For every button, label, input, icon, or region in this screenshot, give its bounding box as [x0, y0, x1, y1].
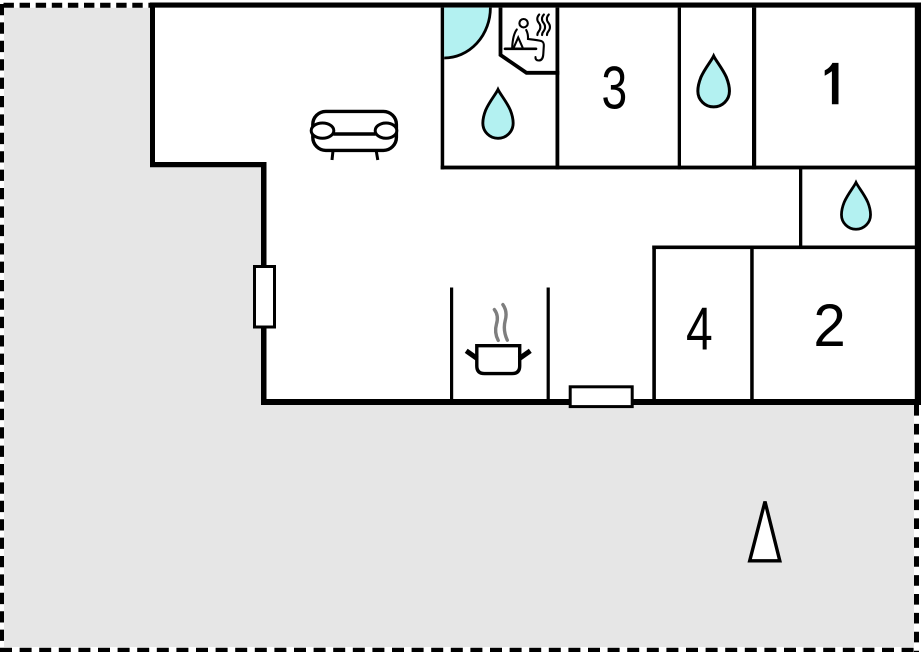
svg-text:2: 2: [813, 291, 845, 359]
svg-text:3: 3: [602, 56, 628, 122]
svg-text:4: 4: [686, 295, 713, 362]
